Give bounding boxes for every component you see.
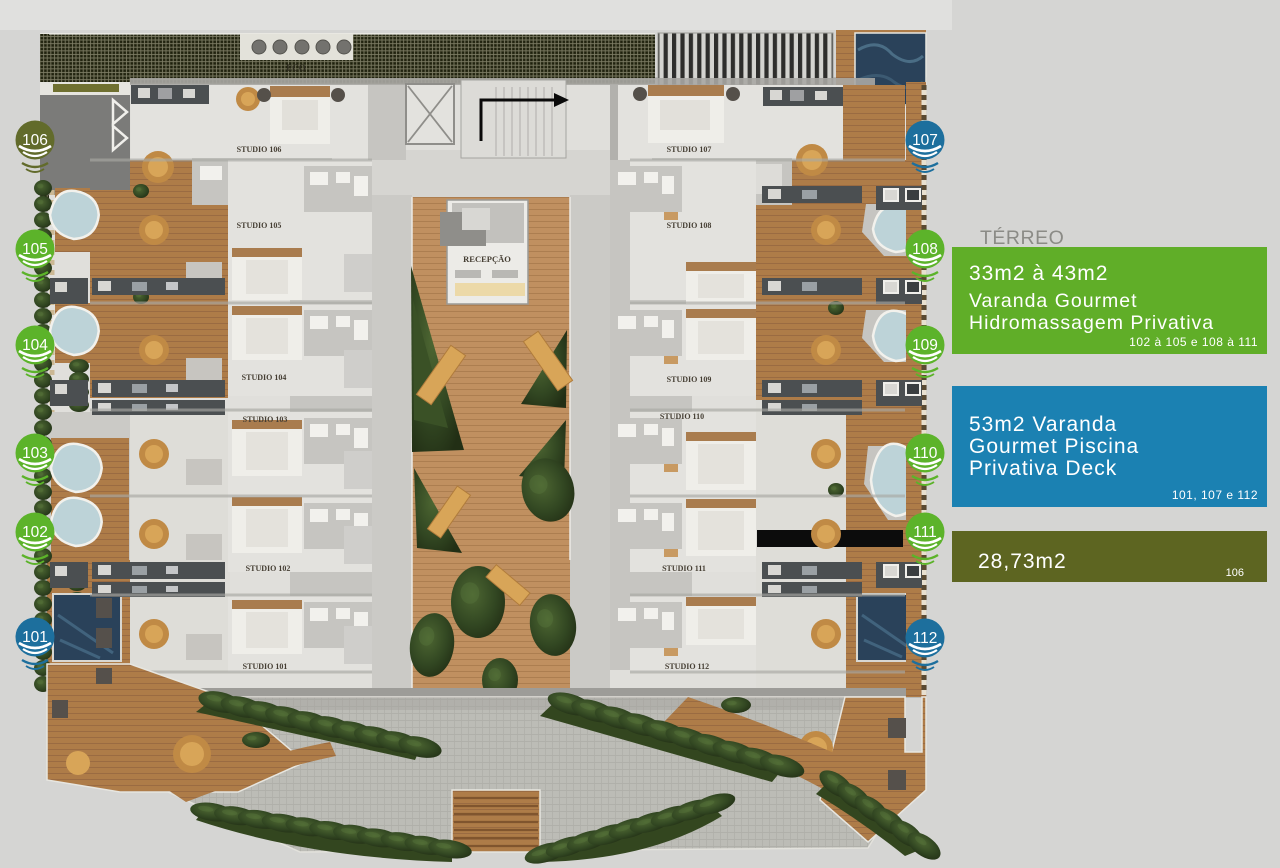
svg-text:110: 110	[913, 445, 938, 462]
svg-text:STUDIO 103: STUDIO 103	[243, 415, 288, 424]
svg-text:RECEPÇÃO: RECEPÇÃO	[463, 254, 511, 264]
svg-text:ECO: ECO	[286, 63, 306, 73]
svg-text:106: 106	[22, 132, 48, 149]
svg-text:STUDIO 107: STUDIO 107	[667, 145, 712, 154]
svg-text:STUDIO 108: STUDIO 108	[667, 221, 712, 230]
svg-text:107: 107	[912, 132, 938, 149]
svg-text:102 à 105 e 108 à 111: 102 à 105 e 108 à 111	[1129, 335, 1258, 349]
svg-text:28,73m2: 28,73m2	[978, 550, 1067, 573]
svg-text:33m2 à 43m2: 33m2 à 43m2	[969, 262, 1108, 285]
svg-text:TÉRREO: TÉRREO	[980, 226, 1064, 249]
svg-text:Hidromassagem Privativa: Hidromassagem Privativa	[969, 312, 1214, 334]
svg-text:STUDIO 109: STUDIO 109	[667, 375, 712, 384]
svg-text:Privativa Deck: Privativa Deck	[969, 457, 1117, 480]
svg-text:104: 104	[22, 337, 48, 354]
svg-text:STUDIO 104: STUDIO 104	[242, 373, 287, 382]
svg-text:STUDIO 106: STUDIO 106	[237, 145, 282, 154]
svg-text:Varanda Gourmet: Varanda Gourmet	[969, 290, 1138, 312]
svg-text:105: 105	[22, 241, 48, 258]
svg-text:111: 111	[913, 524, 937, 541]
svg-text:101: 101	[22, 629, 48, 646]
svg-text:STUDIO 101: STUDIO 101	[243, 662, 288, 671]
svg-text:103: 103	[22, 445, 48, 462]
svg-text:102: 102	[22, 524, 48, 541]
svg-text:STUDIO 111: STUDIO 111	[662, 564, 706, 573]
svg-text:STUDIO 110: STUDIO 110	[660, 412, 704, 421]
svg-text:STUDIO 112: STUDIO 112	[665, 662, 709, 671]
svg-text:109: 109	[912, 337, 938, 354]
svg-text:STUDIO 105: STUDIO 105	[237, 221, 282, 230]
svg-text:112: 112	[913, 630, 938, 647]
svg-text:101, 107 e 112: 101, 107 e 112	[1172, 488, 1258, 502]
svg-text:53m2 Varanda: 53m2 Varanda	[969, 413, 1117, 436]
svg-text:106: 106	[1226, 567, 1244, 579]
svg-text:108: 108	[912, 241, 938, 258]
svg-text:STUDIO 102: STUDIO 102	[246, 564, 291, 573]
svg-text:Gourmet Piscina: Gourmet Piscina	[969, 435, 1139, 458]
